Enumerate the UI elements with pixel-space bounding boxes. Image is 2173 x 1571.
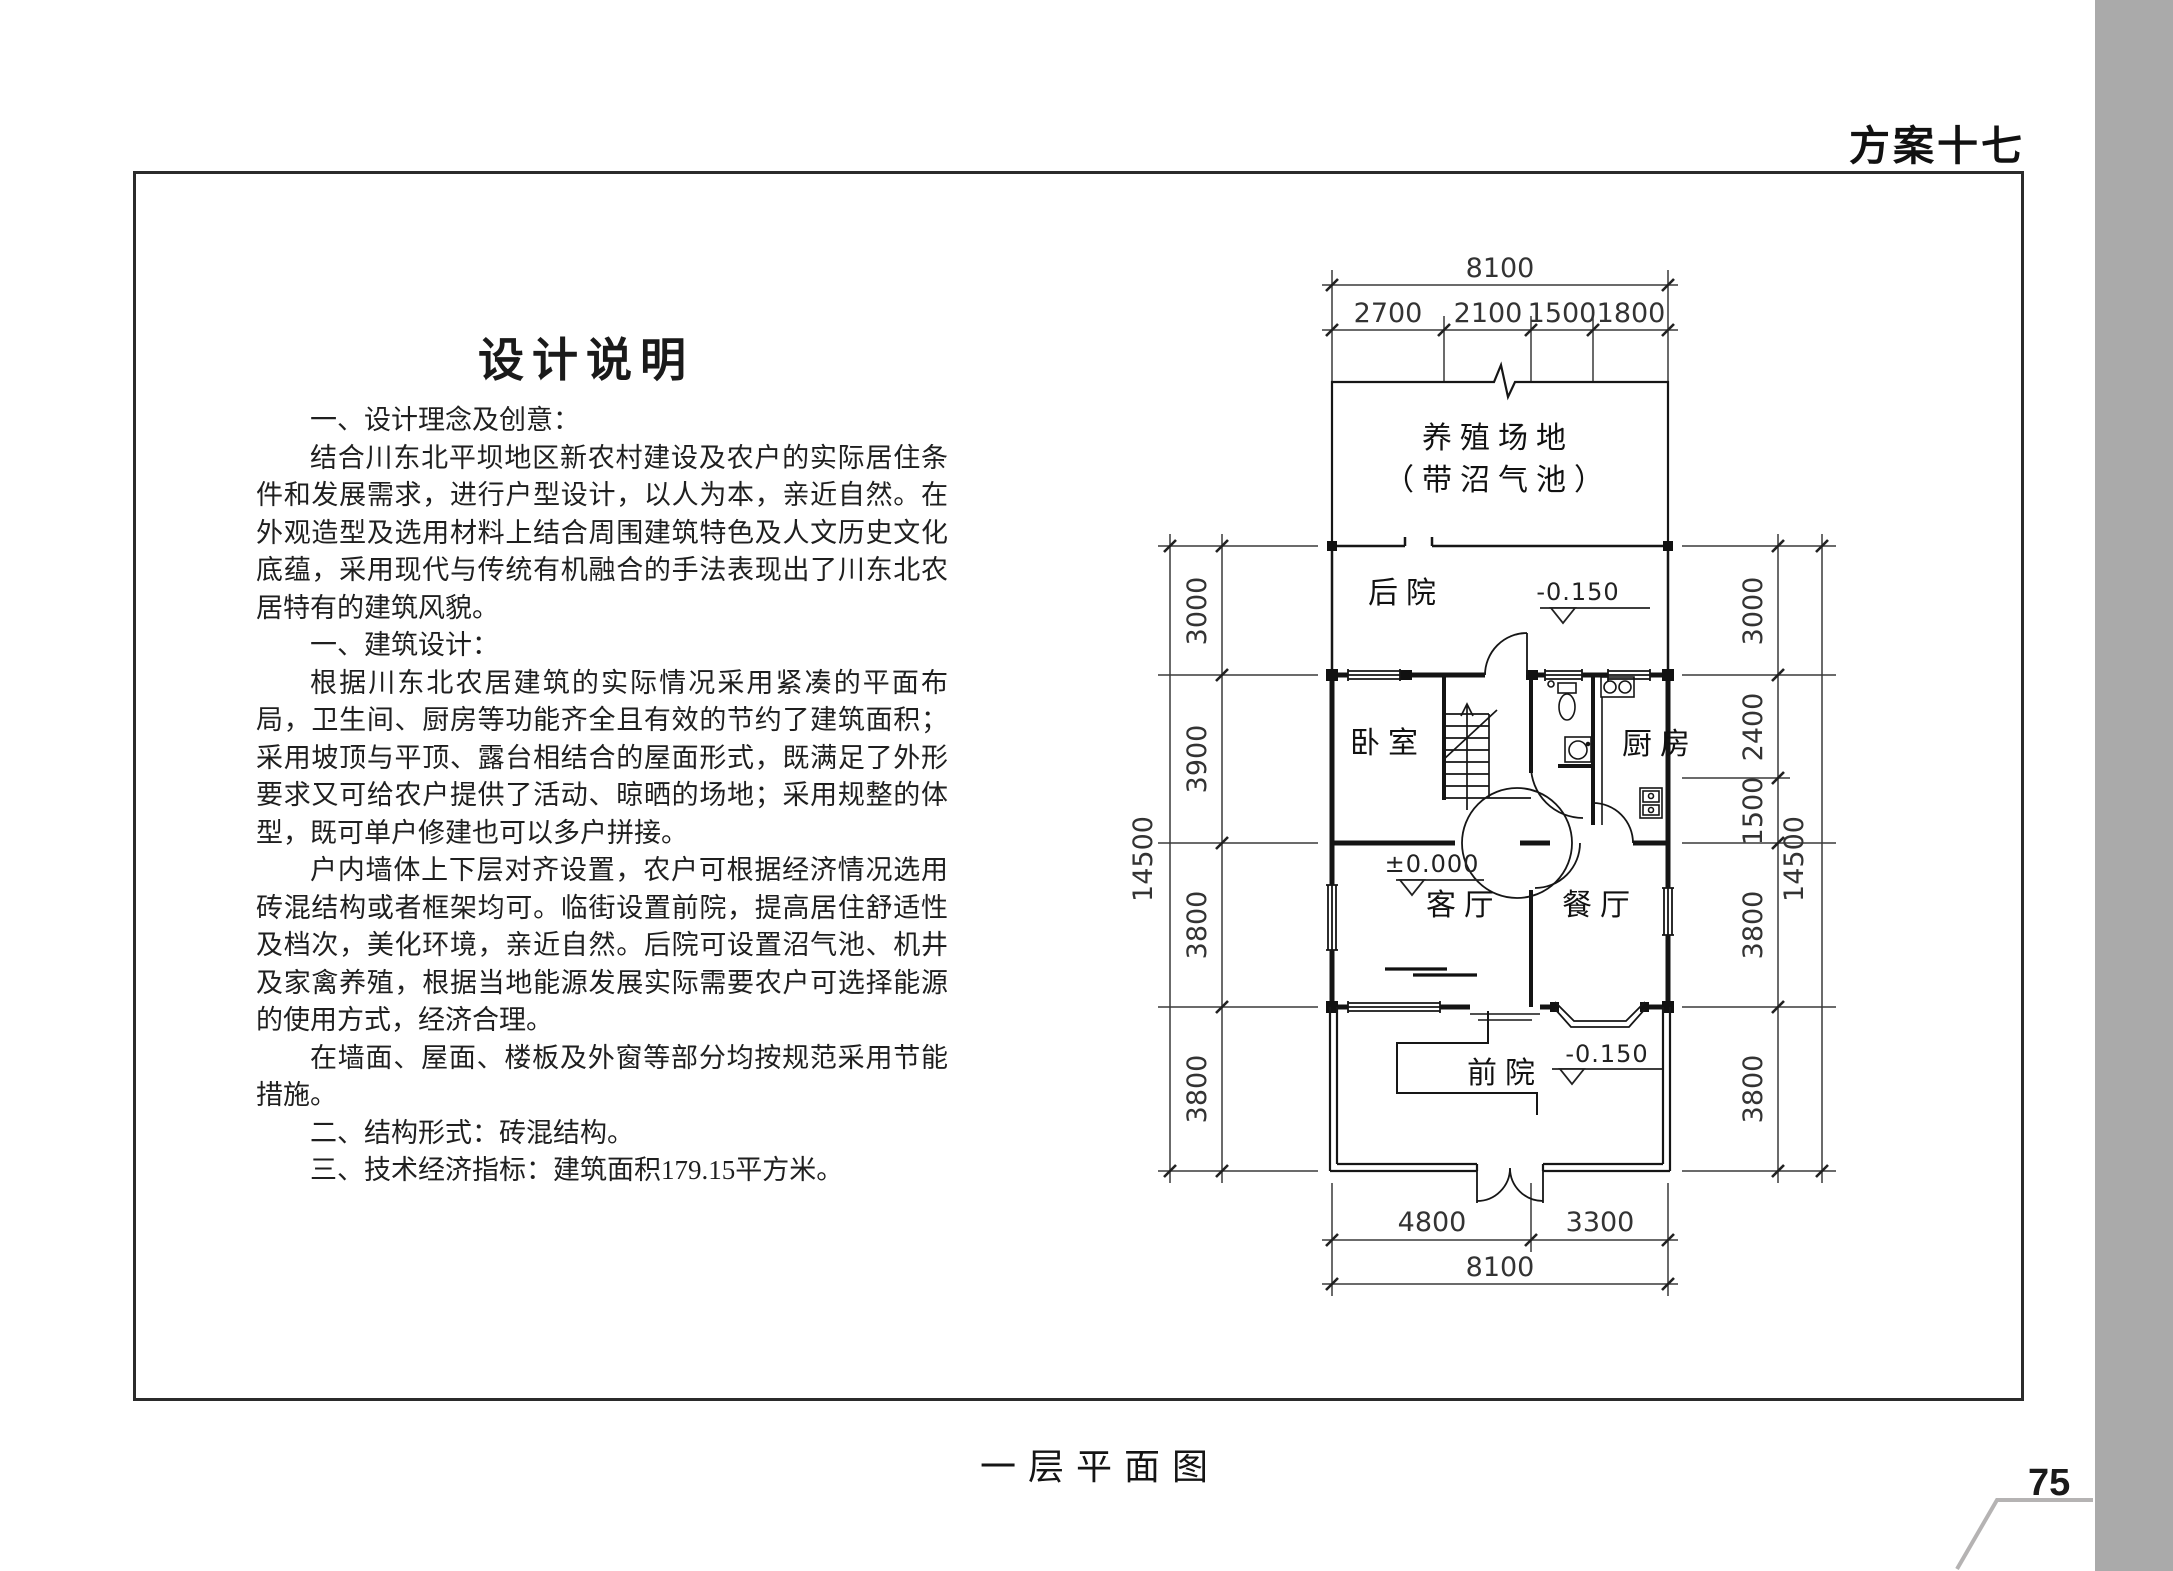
- house-walls: [1332, 675, 1668, 1007]
- front-yard: [1330, 1007, 1670, 1203]
- dim-left-total: 14500: [1128, 816, 1159, 902]
- dim-top-segment: 2700: [1354, 298, 1423, 329]
- dim-left-segment: 3800: [1182, 1055, 1213, 1124]
- page-number: 75: [2028, 1462, 2088, 1505]
- dim-top-segment: 2100: [1454, 298, 1523, 329]
- dining-door: [1535, 843, 1580, 888]
- staircase: [1443, 704, 1531, 810]
- backyard: 后院 -0.150: [1327, 537, 1673, 675]
- bathroom-fixtures: [1548, 681, 1591, 762]
- hall-doors: [1462, 788, 1572, 898]
- entrance-door: [1477, 1168, 1543, 1203]
- room-label-dining-room: 餐厅: [1562, 889, 1638, 922]
- room-label-living-room: 客厅: [1426, 889, 1502, 922]
- level-marker-front-yard: -0.150: [1552, 1040, 1662, 1084]
- dim-bottom-total: 8100: [1466, 1252, 1535, 1283]
- room-label-breeding-area-sub: （带沼气池）: [1384, 464, 1612, 497]
- dim-top-total: 8100: [1466, 253, 1535, 284]
- page-corner-mark: [1957, 1500, 2093, 1569]
- toilet-tank-icon: [1558, 683, 1576, 693]
- backyard-door: [1485, 633, 1527, 675]
- dim-right-segment: 3800: [1738, 891, 1769, 960]
- room-label-bedroom: 卧室: [1350, 727, 1426, 760]
- dim-top-segment: 1800: [1597, 298, 1666, 329]
- kitchen-door: [1593, 803, 1633, 843]
- windows: [1326, 669, 1674, 1027]
- dim-right-segment: 1500: [1738, 777, 1769, 846]
- dimension-labels: 8100 2700 2100 1500 1800 4800 3300 8100 …: [1128, 253, 1810, 1283]
- stove-icon: [1601, 677, 1634, 697]
- dim-right-segment: 3000: [1738, 577, 1769, 646]
- floor-plan-drawing: 8100 2700 2100 1500 1800 4800 3300 8100 …: [0, 0, 2173, 1571]
- room-label-kitchen: 厨房: [1622, 728, 1698, 761]
- dim-bottom-segment: 4800: [1398, 1207, 1467, 1238]
- dim-left-segment: 3800: [1182, 891, 1213, 960]
- level-value-front-yard: -0.150: [1565, 1040, 1648, 1068]
- plan-caption: 一层平面图: [945, 1438, 1255, 1490]
- level-value-backyard: -0.150: [1536, 578, 1619, 606]
- dim-left-segment: 3900: [1182, 725, 1213, 794]
- room-label-backyard: 后院: [1368, 577, 1444, 610]
- room-label-front-yard: 前院: [1467, 1057, 1543, 1090]
- level-marker-backyard: -0.150: [1536, 578, 1650, 623]
- dim-top-segment: 1500: [1528, 298, 1597, 329]
- dim-bottom-segment: 3300: [1566, 1207, 1635, 1238]
- dim-left-segment: 3000: [1182, 577, 1213, 646]
- living-room-marks: [1385, 969, 1477, 975]
- dim-right-segment: 3800: [1738, 1055, 1769, 1124]
- toilet-bowl-icon: [1559, 694, 1575, 720]
- dim-right-total: 14500: [1779, 816, 1810, 902]
- dim-right-segment: 2400: [1738, 693, 1769, 762]
- door-steps: [1470, 1014, 1540, 1020]
- bathroom-door: [1531, 766, 1583, 818]
- front-yard-labels: 前院 -0.150: [1467, 1040, 1662, 1090]
- room-label-breeding-area: 养殖场地: [1422, 422, 1574, 455]
- level-value-living: ±0.000: [1385, 850, 1480, 878]
- breeding-area: 养殖场地 （带沼气池）: [1332, 365, 1668, 546]
- room-labels: 卧室 厨房 客厅 餐厅: [1350, 727, 1698, 922]
- bay-window: [1555, 1002, 1645, 1027]
